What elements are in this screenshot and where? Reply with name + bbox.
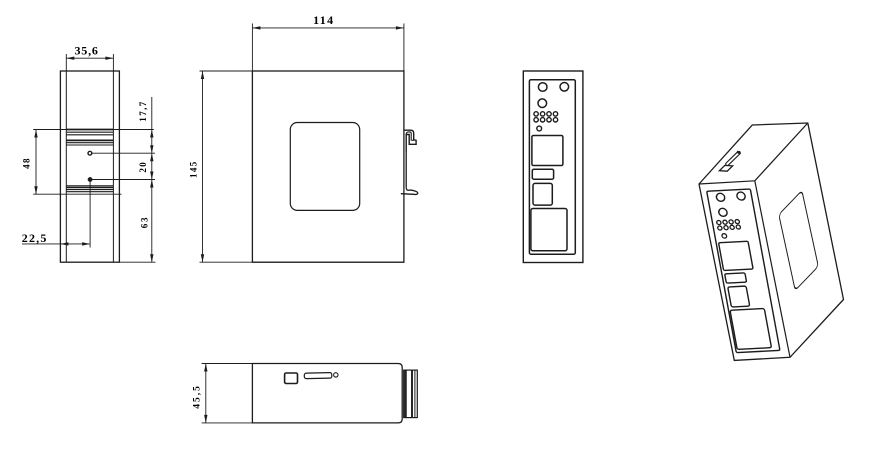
svg-text:45,5: 45,5 (193, 384, 203, 409)
svg-text:20: 20 (138, 161, 148, 173)
svg-text:17,7: 17,7 (138, 100, 148, 121)
svg-text:63: 63 (139, 216, 149, 229)
svg-text:48: 48 (22, 157, 32, 169)
svg-text:114: 114 (313, 13, 334, 27)
svg-text:35,6: 35,6 (74, 43, 98, 57)
svg-text:145: 145 (188, 160, 198, 178)
svg-text:22,5: 22,5 (22, 231, 48, 245)
